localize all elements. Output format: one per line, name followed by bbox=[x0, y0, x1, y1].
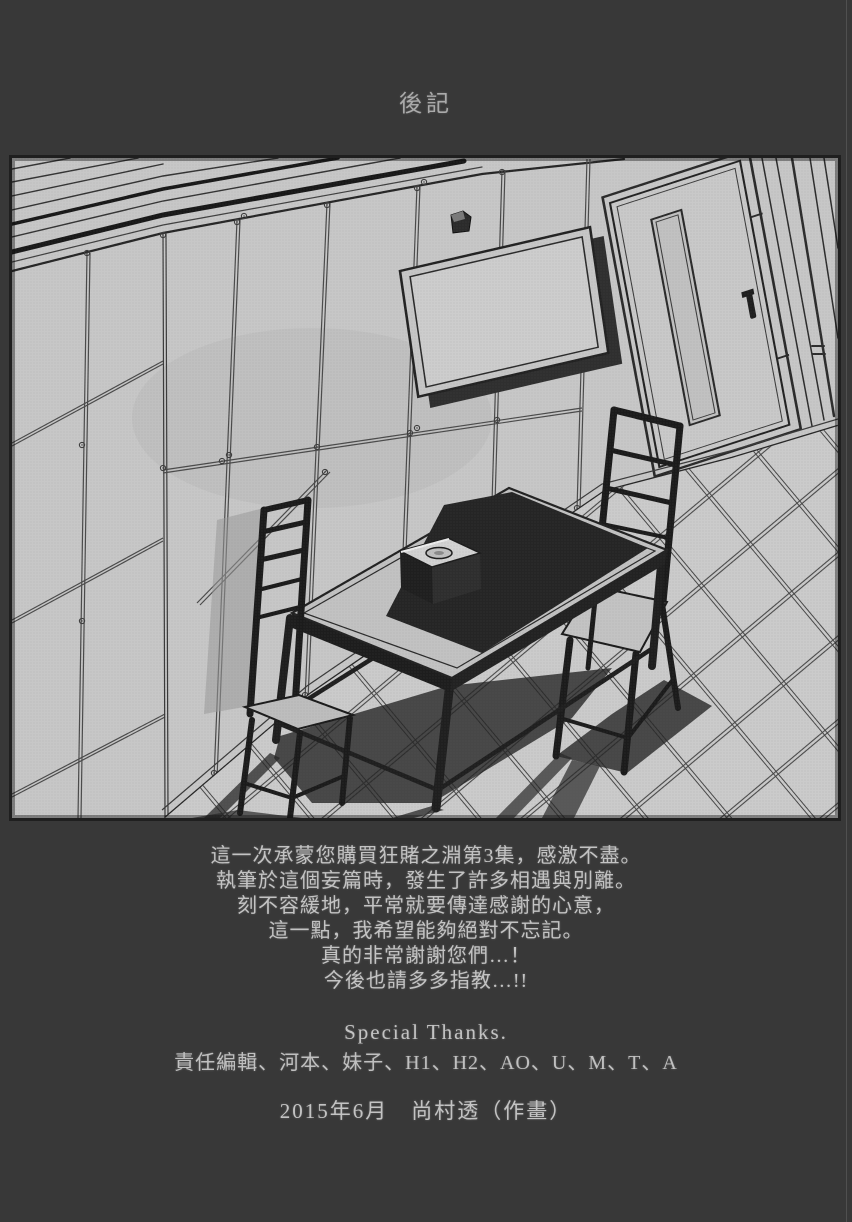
afterword-line: 今後也請多多指教…!! bbox=[0, 969, 852, 994]
afterword-line: 這一次承蒙您購買狂賭之淵第3集，感激不盡。 bbox=[0, 844, 852, 869]
date-credit: 2015年6月 尚村透（作畫） bbox=[0, 1095, 852, 1125]
afterword-page: 後記 bbox=[0, 0, 852, 1222]
page-title: 後記 bbox=[0, 84, 852, 118]
interrogation-room-scene bbox=[12, 158, 838, 818]
afterword-line: 這一點，我希望能夠絕對不忘記。 bbox=[0, 919, 852, 944]
page-edge-highlight bbox=[846, 0, 847, 1222]
special-thanks-heading: Special Thanks. bbox=[0, 1020, 852, 1045]
special-thanks-names: 責任編輯、河本、妹子、H1、H2、AO、U、M、T、A bbox=[0, 1046, 852, 1075]
afterword-line: 刻不容緩地，平常就要傳達感謝的心意， bbox=[0, 894, 852, 919]
afterword-line: 真的非常謝謝您們…！ bbox=[0, 944, 852, 969]
afterword-line: 執筆於這個妄篇時，發生了許多相遇與別離。 bbox=[0, 869, 852, 894]
halftone-texture bbox=[12, 158, 838, 818]
afterword-text-block: 這一次承蒙您購買狂賭之淵第3集，感激不盡。 執筆於這個妄篇時，發生了許多相遇與別… bbox=[0, 844, 852, 994]
afterword-illustration bbox=[9, 155, 841, 821]
